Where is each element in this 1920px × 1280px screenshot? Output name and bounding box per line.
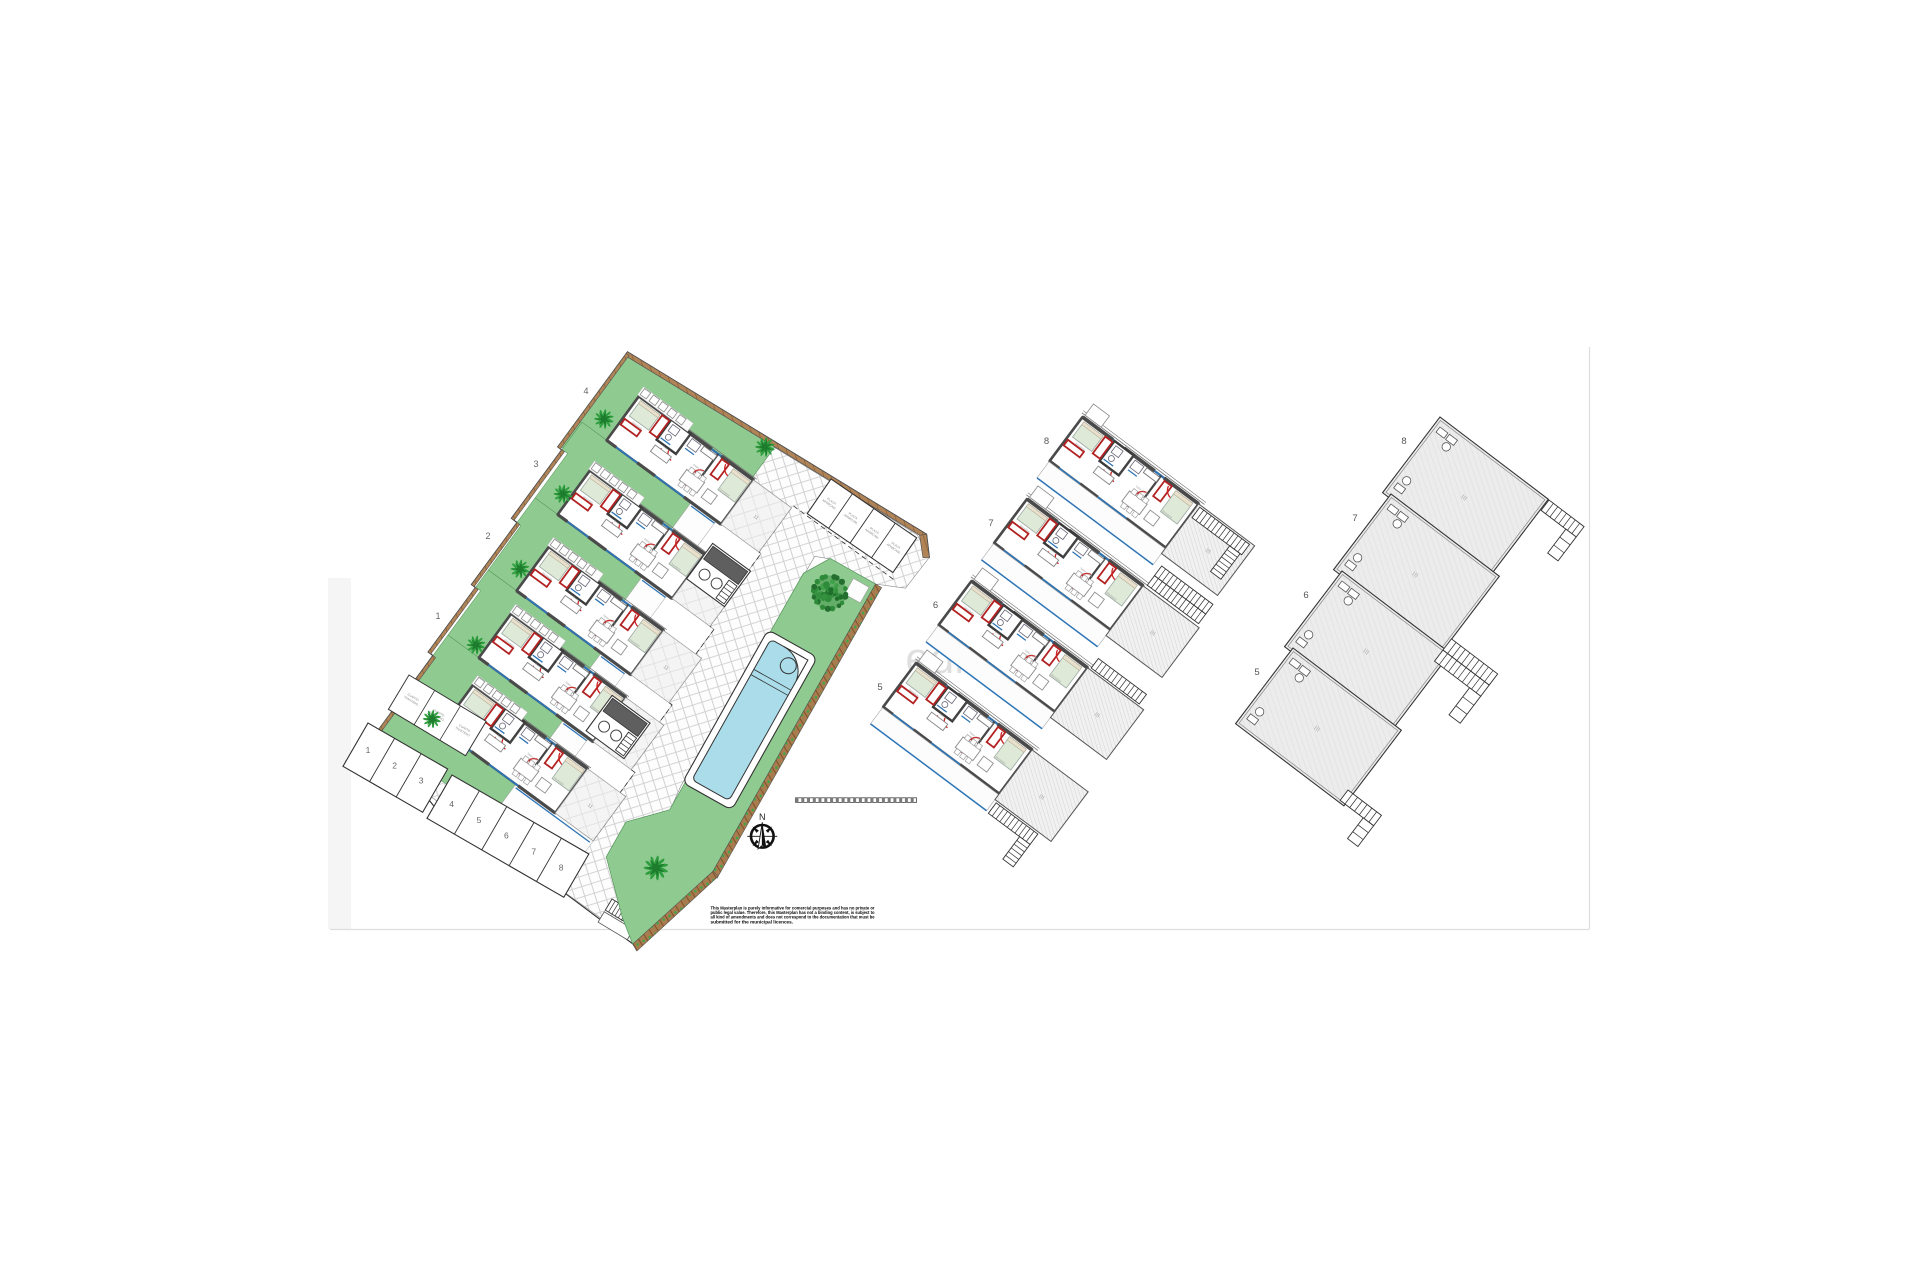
svg-text:4: 4 [449, 799, 454, 809]
svg-text:3: 3 [533, 459, 538, 469]
svg-text:6: 6 [504, 831, 509, 841]
svg-text:7: 7 [988, 518, 993, 529]
svg-text:5: 5 [877, 682, 882, 693]
svg-text:6: 6 [933, 600, 938, 611]
svg-text:N: N [759, 812, 766, 822]
svg-text:2: 2 [392, 760, 397, 770]
svg-text:6: 6 [1303, 590, 1308, 601]
svg-text:3: 3 [419, 776, 424, 786]
svg-text:8: 8 [559, 862, 564, 872]
svg-text:4: 4 [583, 386, 588, 396]
svg-text:1: 1 [366, 745, 371, 755]
svg-text:5: 5 [477, 815, 482, 825]
svg-text:8: 8 [1044, 436, 1049, 447]
svg-text:2: 2 [485, 531, 490, 541]
svg-text:8: 8 [1401, 436, 1406, 447]
svg-text:1: 1 [435, 611, 440, 621]
svg-text:7: 7 [1352, 513, 1357, 524]
svg-text:7: 7 [531, 847, 536, 857]
svg-text:5: 5 [1254, 667, 1259, 678]
svg-text:submitted for the municipal li: submitted for the municipal licences. [711, 919, 794, 924]
